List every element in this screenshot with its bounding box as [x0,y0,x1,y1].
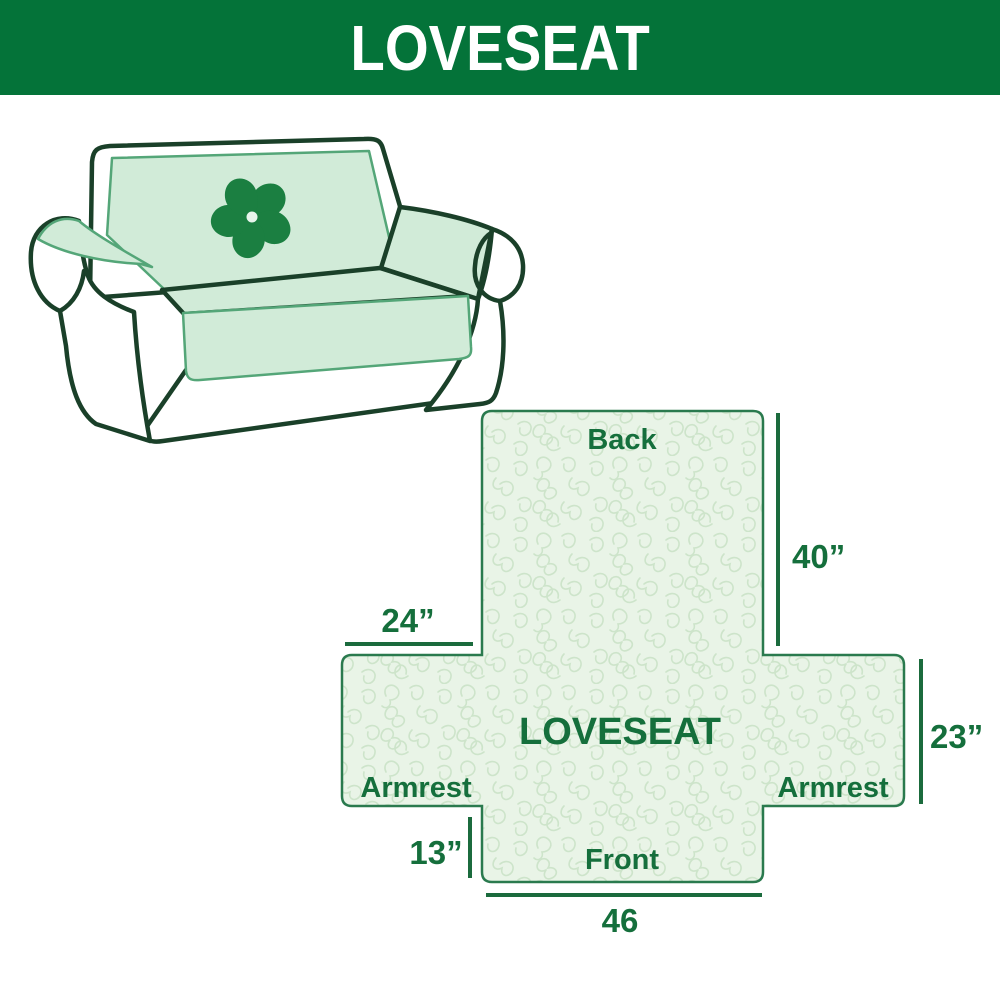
armrest-right-label: Armrest [777,772,889,804]
dim-front-width: 46 [602,902,639,939]
dim-armrest-height: 23” [930,718,983,755]
illustration-canvas: Back LOVESEAT Armrest Armrest Front 40” … [0,0,1000,1000]
cover-layout-diagram: Back LOVESEAT Armrest Armrest Front 40” … [342,411,983,939]
dim-armrest-width: 24” [381,602,434,639]
front-section-label: Front [585,844,659,876]
sofa-illustration [31,139,523,442]
cover-cross-shape [342,411,904,882]
page: { "banner": { "title": "LOVESEAT" }, "so… [0,0,1000,1000]
back-section-label: Back [587,424,657,456]
dim-front-drop: 13” [409,834,462,871]
armrest-left-label: Armrest [360,772,472,804]
dim-back-length: 40” [792,538,845,575]
center-label: LOVESEAT [519,711,721,753]
